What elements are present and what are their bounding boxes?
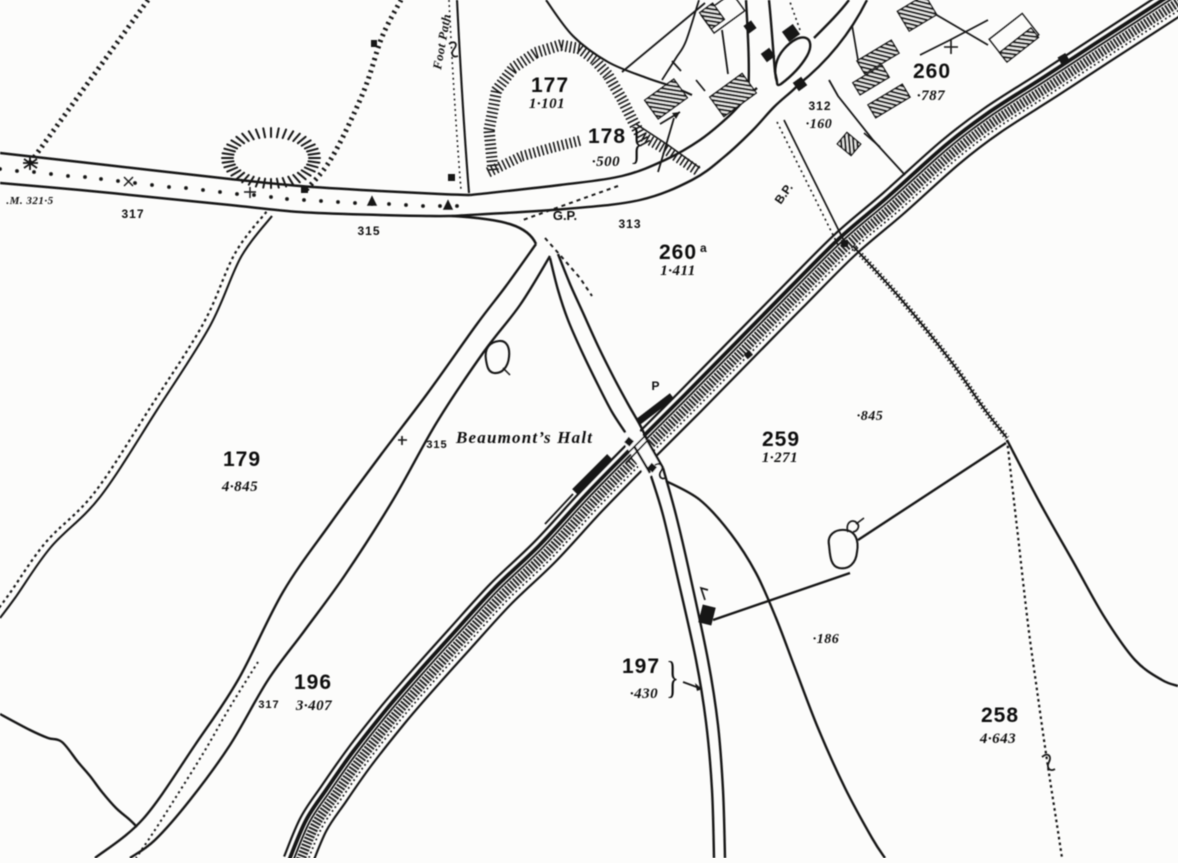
svg-text:315: 315 xyxy=(357,224,380,238)
svg-text:·787: ·787 xyxy=(917,88,945,104)
svg-text:312: 312 xyxy=(808,99,831,113)
svg-text:4·643: 4·643 xyxy=(979,731,1016,747)
svg-text:179: 179 xyxy=(223,448,261,471)
svg-text:197: 197 xyxy=(622,655,660,678)
svg-text:P: P xyxy=(651,379,660,393)
svg-text:G.P.: G.P. xyxy=(553,208,577,223)
svg-text:317: 317 xyxy=(258,699,279,711)
svg-text:260: 260 xyxy=(913,60,951,83)
svg-text:·160: ·160 xyxy=(806,117,833,132)
svg-text:·845: ·845 xyxy=(857,409,884,424)
svg-text:a: a xyxy=(700,241,707,255)
svg-text:3·407: 3·407 xyxy=(295,698,332,714)
svg-text:177: 177 xyxy=(531,74,569,97)
svg-text:315: 315 xyxy=(426,439,447,451)
svg-text:·500: ·500 xyxy=(592,154,620,170)
svg-text:260: 260 xyxy=(659,241,697,264)
svg-text:·430: ·430 xyxy=(630,686,658,702)
svg-text:317: 317 xyxy=(121,207,144,221)
svg-text:}: } xyxy=(630,118,643,167)
svg-text:258: 258 xyxy=(981,704,1019,727)
svg-text:1·271: 1·271 xyxy=(762,450,798,466)
svg-text:·186: ·186 xyxy=(813,632,840,647)
svg-text:1·411: 1·411 xyxy=(660,263,695,279)
svg-text:313: 313 xyxy=(618,217,641,231)
svg-text:1·101: 1·101 xyxy=(529,96,565,112)
svg-text:Beaumont’s Halt: Beaumont’s Halt xyxy=(455,428,593,447)
svg-text:}: } xyxy=(666,652,679,701)
svg-text:178: 178 xyxy=(588,125,626,148)
svg-text:4·845: 4·845 xyxy=(221,479,258,495)
svg-text:259: 259 xyxy=(762,428,800,451)
svg-text:196: 196 xyxy=(294,671,332,694)
svg-text:.M. 321·5: .M. 321·5 xyxy=(6,195,53,207)
